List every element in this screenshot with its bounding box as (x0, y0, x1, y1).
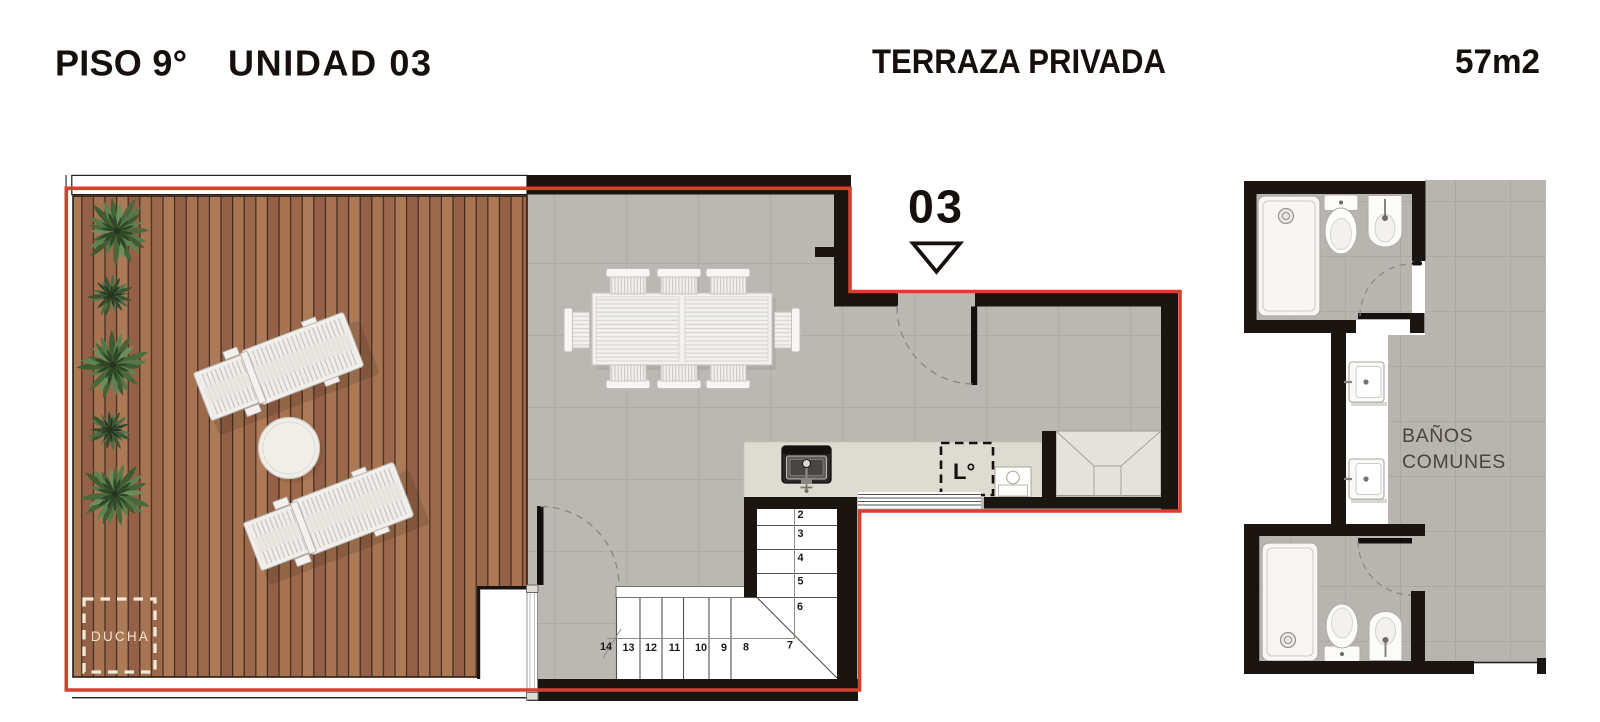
svg-text:14: 14 (600, 641, 612, 653)
svg-text:L°: L° (953, 459, 975, 484)
svg-text:4: 4 (797, 552, 803, 564)
svg-text:13: 13 (622, 642, 634, 654)
svg-text:BAÑOS: BAÑOS (1402, 423, 1473, 447)
svg-text:3: 3 (797, 528, 803, 540)
svg-text:11: 11 (669, 642, 680, 654)
svg-text:7: 7 (787, 640, 793, 652)
svg-text:COMUNES: COMUNES (1402, 451, 1506, 473)
svg-text:DUCHA: DUCHA (91, 629, 150, 644)
svg-text:9: 9 (721, 642, 727, 654)
svg-text:UNIDAD 03: UNIDAD 03 (228, 43, 431, 84)
svg-text:8: 8 (743, 642, 749, 654)
svg-text:TERRAZA PRIVADA: TERRAZA PRIVADA (872, 43, 1166, 81)
svg-text:PISO 9°: PISO 9° (55, 43, 187, 84)
svg-text:57m2: 57m2 (1455, 43, 1540, 81)
svg-text:2: 2 (797, 509, 803, 521)
svg-text:10: 10 (695, 642, 707, 654)
svg-text:12: 12 (645, 642, 657, 654)
svg-text:6: 6 (797, 601, 803, 613)
svg-text:5: 5 (797, 576, 803, 588)
